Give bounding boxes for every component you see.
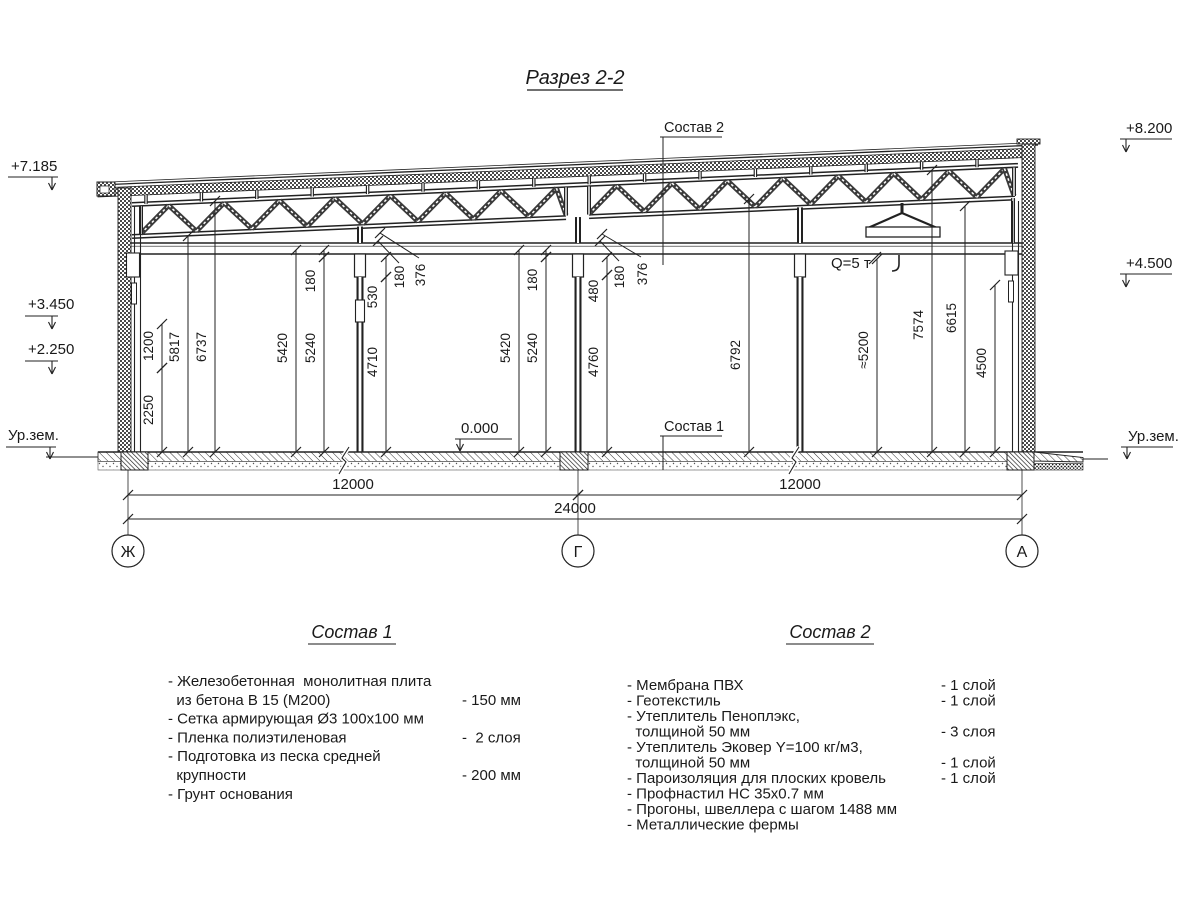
legend2-item-value: - 1 слой <box>941 770 996 787</box>
column-splice-detail <box>356 300 365 322</box>
right-parapet-cap <box>1017 139 1040 144</box>
dim-180-mid2-leader <box>600 241 619 261</box>
dim-bay-left: 12000 <box>332 476 374 493</box>
dim-6615: 6615 <box>944 303 959 333</box>
dim-tick <box>597 229 607 239</box>
dim-5240-left: 5240 <box>303 333 318 363</box>
axis-label-zh: Ж <box>121 544 136 561</box>
dim-total: 24000 <box>554 500 596 517</box>
trolley-leg-left <box>869 213 902 228</box>
legend1-items: - Железобетонная монолитная плита из бет… <box>168 673 521 803</box>
legend2-item-text: - Мембрана ПВХ <box>627 677 744 694</box>
legend1-item-text: - Подготовка из песка средней <box>168 748 381 765</box>
legend1-title: Состав 1 <box>311 622 392 642</box>
legend2-item-text: - Утеплитель Пеноплэкс, <box>627 708 800 725</box>
legend2-item-text: толщиной 50 мм <box>627 755 750 772</box>
dim-6737: 6737 <box>194 332 209 362</box>
right-wall <box>1022 143 1035 452</box>
legend1-item-text: - Железобетонная монолитная плита <box>168 673 432 690</box>
left-wall-anchor <box>132 283 137 304</box>
legend1-item-value: - 150 мм <box>462 692 521 709</box>
dim-5817: 5817 <box>167 332 182 362</box>
dim-5420-mid: 5420 <box>498 333 513 363</box>
foundation-right <box>1007 452 1034 470</box>
column-head <box>573 254 584 277</box>
dim-tick <box>375 228 385 238</box>
foundation-middle <box>560 452 588 470</box>
legend2-item-text: - Пароизоляция для плоских кровель <box>627 770 886 787</box>
dim-180-left: 180 <box>303 270 318 293</box>
elevation-mark-right-1-label: +4.500 <box>1126 255 1172 272</box>
dim-530: 530 <box>365 286 380 309</box>
dim-6792: 6792 <box>728 340 743 370</box>
legend2-item-value: - 1 слой <box>941 755 996 772</box>
legend2-item-text: - Геотекстиль <box>627 693 721 710</box>
apron-wedge <box>1034 452 1083 462</box>
legend2-item-text: - Металлические фермы <box>627 817 799 834</box>
dim-bay-right: 12000 <box>779 476 821 493</box>
dim-5240-mid: 5240 <box>525 333 540 363</box>
dim-4710: 4710 <box>365 347 380 377</box>
dim-5420-left: 5420 <box>275 333 290 363</box>
legend2-item-value: - 3 слоя <box>941 724 996 741</box>
right-wall-anchor <box>1009 281 1014 302</box>
legend2-title: Состав 2 <box>789 622 870 642</box>
elevation-mark-left-1-label: +3.450 <box>28 296 74 313</box>
legend2-item-text: - Прогоны, швеллера с шагом 1488 мм <box>627 801 897 818</box>
dim-180-mid: 180 <box>525 269 540 292</box>
legend1-item-text: из бетона В 15 (М200) <box>168 692 330 709</box>
callout-sostav2-label: Состав 2 <box>664 120 724 136</box>
dim-180-left2: 180 <box>392 266 407 289</box>
legend1-item-text: - Сетка армирующая Ø3 100х100 мм <box>168 711 424 728</box>
roof-left-edge-notch <box>100 186 109 193</box>
elevation-mark-left-0-label: +7.185 <box>11 158 57 175</box>
legend2-item-text: толщиной 50 мм <box>627 724 750 741</box>
dim-4500: 4500 <box>974 348 989 378</box>
elevation-mark-left-3-label: Ур.зем. <box>8 427 59 444</box>
floor-level-mark-label: 0.000 <box>461 420 499 437</box>
dim-376-mid: 376 <box>635 263 650 286</box>
elevation-mark-right-0-label: +8.200 <box>1126 120 1172 137</box>
right-wall-bracket <box>1005 251 1018 275</box>
runway-girder <box>120 243 1022 254</box>
dim-1200: 1200 <box>141 331 156 361</box>
legend2-item-text: - Профнастил НС 35х0.7 мм <box>627 786 824 803</box>
column-head <box>795 254 806 277</box>
legend1-item-text: крупности <box>168 767 246 784</box>
left-wall <box>118 188 131 452</box>
legend2-item-value: - 1 слой <box>941 677 996 694</box>
legend2-items: - Мембрана ПВХ- 1 слой- Геотекстиль- 1 с… <box>627 677 996 834</box>
axis-label-a: А <box>1017 544 1028 561</box>
trolley-beam <box>866 227 940 237</box>
dim-180-mid2: 180 <box>612 266 627 289</box>
dim-376-left: 376 <box>413 264 428 287</box>
legend2-item-text: - Утеплитель Эковер Y=100 кг/м3, <box>627 739 863 756</box>
axis-label-g: Г <box>574 544 583 561</box>
foundation-left <box>121 452 148 470</box>
apron-base-strip <box>1030 464 1083 471</box>
legend1-item-value: - 200 мм <box>462 767 521 784</box>
legend1-item-value: - 2 слоя <box>462 729 521 746</box>
legend1-item-text: - Пленка полиэтиленовая <box>168 729 347 746</box>
horizontal-dimensions: 120001200024000 <box>123 476 1027 524</box>
dim-7574: 7574 <box>911 309 926 340</box>
legend1-item-text: - Грунт основания <box>168 786 293 803</box>
dim-4760: 4760 <box>586 347 601 377</box>
dim-5200: ≈5200 <box>856 331 871 368</box>
crane-capacity-label: Q=5 т <box>831 255 871 272</box>
column-head <box>355 254 366 277</box>
sheet-title: Разрез 2-2 <box>525 67 624 89</box>
elevation-mark-right-2-label: Ур.зем. <box>1128 428 1179 445</box>
composition-legends: Состав 1 - Железобетонная монолитная пли… <box>168 622 996 834</box>
left-wall-bracket <box>127 253 140 277</box>
truss-web-diagonal-hatch <box>169 205 197 231</box>
legend2-item-value: - 1 слой <box>941 693 996 710</box>
callout-sostav1-label: Состав 1 <box>664 419 724 435</box>
drawing-sheet: Разрез 2-2 <box>0 0 1200 900</box>
dim-2250: 2250 <box>141 395 156 425</box>
dim-180-left2-leader <box>378 241 399 263</box>
trolley-leg-right <box>902 213 936 228</box>
crane-hook-icon <box>892 255 899 271</box>
section-drawing-svg: Разрез 2-2 <box>0 0 1200 900</box>
dim-480: 480 <box>586 280 601 303</box>
elevation-mark-left-2-label: +2.250 <box>28 341 74 358</box>
